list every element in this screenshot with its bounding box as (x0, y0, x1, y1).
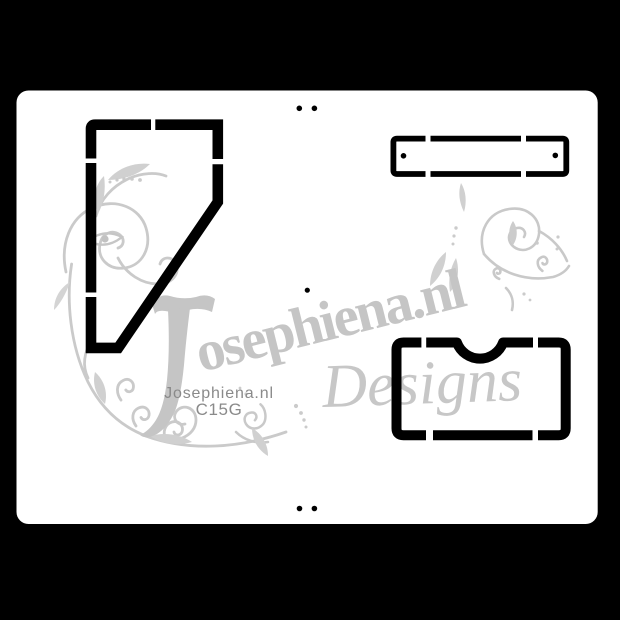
svg-text:C15G: C15G (196, 400, 243, 419)
